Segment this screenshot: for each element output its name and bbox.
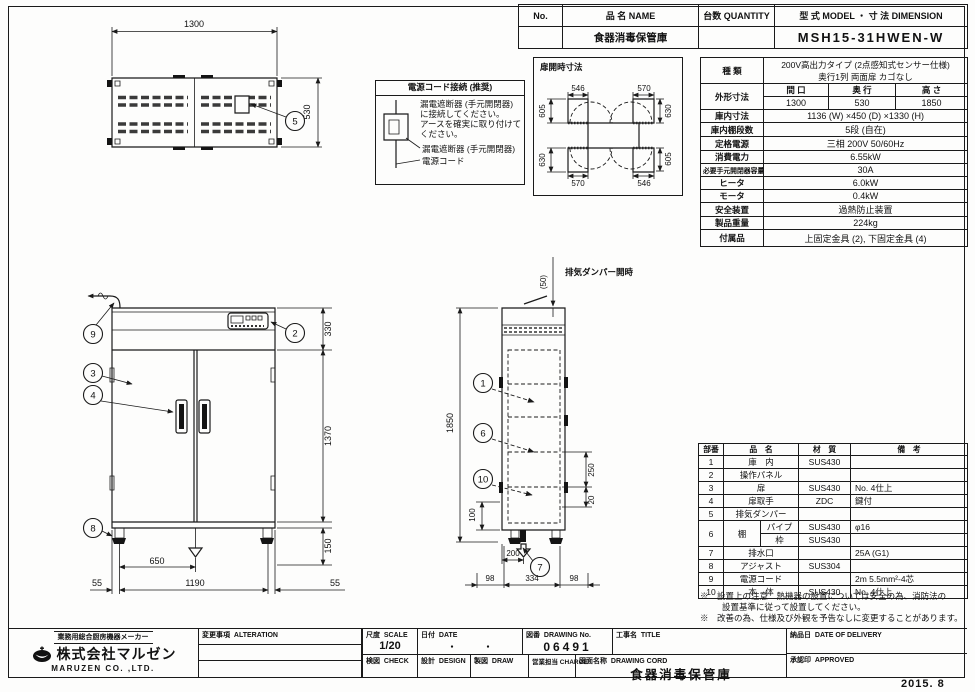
balloon-6: 6 bbox=[474, 424, 493, 443]
plan-width-dim: 1300 bbox=[184, 19, 204, 29]
side-bottom-dim: 100 bbox=[468, 508, 477, 522]
spec-row-label: 製品重量 bbox=[701, 217, 764, 230]
spec-row-value: 30A bbox=[764, 164, 968, 177]
dim-630-right: 630 bbox=[664, 104, 673, 118]
balloon-9: 9 bbox=[84, 325, 103, 344]
front-width-dim: 1190 bbox=[185, 578, 204, 588]
parts-col-no: 部番 bbox=[699, 444, 724, 456]
svg-text:3: 3 bbox=[90, 369, 95, 380]
approved-label: 承認印 APPROVED bbox=[787, 654, 967, 665]
parts-row: 8アジャストSUS304 bbox=[699, 560, 968, 573]
parts-row-shelf-pipe: 6 棚 パイプ SUS430 φ16 bbox=[699, 521, 968, 534]
svg-text:5: 5 bbox=[292, 117, 297, 128]
dim-605-right-bottom: 605 bbox=[664, 152, 673, 166]
side-front-offset-dim: 98 bbox=[486, 574, 495, 583]
control-panel bbox=[228, 313, 268, 329]
outer-col-height: 高 さ bbox=[896, 84, 968, 97]
svg-text:9: 9 bbox=[90, 330, 95, 341]
col-no: No. bbox=[519, 5, 563, 27]
parts-col-material: 材 質 bbox=[799, 444, 851, 456]
draw-cell: 製図 DRAW bbox=[470, 654, 528, 678]
company-name-jp: 株式会社マルゼン bbox=[57, 644, 177, 664]
balloon-10: 10 bbox=[474, 470, 493, 489]
parts-row: 5排気ダンパー bbox=[699, 508, 968, 521]
spec-row-label: 安全装置 bbox=[701, 203, 764, 217]
outer-height: 1850 bbox=[896, 97, 968, 110]
design-label: 設計 DESIGN bbox=[418, 655, 470, 666]
alteration-label: 変更事項 ALTERATION bbox=[199, 629, 361, 640]
spec-row-label: 必要手元開閉器容量 bbox=[701, 164, 764, 177]
balloon-1: 1 bbox=[474, 374, 493, 393]
col-qty: 台数 QUANTITY bbox=[699, 5, 775, 27]
power-note-line2: に接続してください。 bbox=[420, 109, 505, 119]
draw-label: 製図 DRAW bbox=[471, 655, 528, 666]
delivery-label: 納品日 DATE OF DELIVERY bbox=[787, 629, 967, 640]
spec-row-label: モータ bbox=[701, 190, 764, 203]
product-name: 食器消毒保管庫 bbox=[563, 27, 699, 49]
spec-row-value: 三相 200V 50/60Hz bbox=[764, 137, 968, 151]
project-title-label: 工事名 TITLE bbox=[613, 629, 786, 640]
shelf-label: 棚 bbox=[724, 521, 761, 547]
note-line1: ※ 設置上の注意 熱機器の設置については安全の為、消防法の bbox=[700, 591, 970, 602]
side-pitch-dim: 250 bbox=[587, 463, 596, 477]
drawing-name-cell: 図面名称 DRAWING CORD 食器消毒保管庫 bbox=[575, 654, 786, 678]
power-note-title: 電源コード接続 (推奨) bbox=[376, 81, 524, 96]
maker-area: 業務用総合厨房機器メーカー 株式会社マルゼン MARUZEN CO. ,LTD. bbox=[8, 629, 198, 678]
spec-row-label: 定格電源 bbox=[701, 137, 764, 151]
spec-row-value: 6.55kW bbox=[764, 151, 968, 164]
door-open-title: 扉開時寸法 bbox=[540, 61, 583, 73]
dim-570-bottom: 570 bbox=[571, 179, 585, 188]
date-cell: 日付 DATE ・ ・ bbox=[417, 629, 522, 654]
door-open-box: 扉開時寸法 546 570 bbox=[533, 57, 683, 196]
date-value: ・ ・ bbox=[418, 640, 522, 653]
spec-accessory-value: 上固定金具 (2), 下固定金具 (4) bbox=[764, 230, 968, 247]
door-handle-right bbox=[199, 400, 210, 433]
spec-outer-label: 外形寸法 bbox=[701, 84, 764, 110]
balloon-4: 4 bbox=[84, 386, 103, 405]
spec-row-label: 庫内棚段数 bbox=[701, 123, 764, 137]
parts-row: 4扉取手ZDC鍵付 bbox=[699, 495, 968, 508]
scale-cell: 尺度 SCALE 1/20 bbox=[362, 629, 417, 654]
drawing-no-label: 図番 DRAWING No. bbox=[523, 629, 612, 640]
parts-row: 7排水口25A (G1) bbox=[699, 547, 968, 560]
design-cell: 設計 DESIGN bbox=[417, 654, 470, 678]
issue-date-stamp: 2015. 8 bbox=[901, 678, 945, 690]
outer-depth: 530 bbox=[829, 97, 896, 110]
front-left-offset-dim: 55 bbox=[92, 578, 102, 588]
delivery-cell: 納品日 DATE OF DELIVERY bbox=[786, 629, 967, 654]
spec-row-value: 1136 (W) ×450 (D) ×1330 (H) bbox=[764, 110, 968, 123]
spec-accessory-label: 付属品 bbox=[701, 230, 764, 247]
col-name: 品 名 NAME bbox=[563, 5, 699, 27]
front-leg-dim: 150 bbox=[323, 538, 333, 553]
maker-tagline: 業務用総合厨房機器メーカー bbox=[54, 631, 153, 644]
side-height-dim: 1850 bbox=[445, 413, 455, 433]
parts-row: 1庫 内SUS430 bbox=[699, 456, 968, 469]
front-center-dim: 650 bbox=[149, 556, 164, 566]
front-top-dim: 330 bbox=[323, 321, 333, 336]
outer-col-width: 間 口 bbox=[764, 84, 829, 97]
parts-col-name: 品 名 bbox=[724, 444, 799, 456]
check-label: 検図 CHECK bbox=[363, 655, 417, 666]
install-notes: ※ 設置上の注意 熱機器の設置については安全の為、消防法の 設置基準に従って設置… bbox=[700, 591, 970, 624]
balloon-5: 5 bbox=[286, 112, 305, 131]
kind-line1: 200V高出力タイプ (2点感知式センサー仕様) bbox=[766, 59, 965, 71]
drawing-name-value: 食器消毒保管庫 bbox=[576, 664, 786, 683]
header-table: No. 品 名 NAME 台数 QUANTITY 型 式 MODEL ・ 寸 法… bbox=[518, 4, 968, 49]
note-line3: ※ 改善の為、仕様及び外観を予告なしに変更することがあります。 bbox=[700, 613, 970, 624]
spec-row-value: 224kg bbox=[764, 217, 968, 230]
title-block: 業務用総合厨房機器メーカー 株式会社マルゼン MARUZEN CO. ,LTD.… bbox=[8, 628, 967, 678]
svg-text:2: 2 bbox=[292, 329, 297, 340]
qty-value bbox=[699, 27, 775, 49]
note-line2: 設置基準に従って設置してください。 bbox=[700, 602, 970, 613]
parts-row: 3扉SUS430No. 4仕上 bbox=[699, 482, 968, 495]
balloon-3: 3 bbox=[84, 364, 103, 383]
charge-cell: 営業担当 CHARGE bbox=[528, 654, 575, 678]
company-name-en: MARUZEN CO. ,LTD. bbox=[8, 664, 198, 673]
power-note-diagram: 漏電遮断器 (手元開閉器) に接続してください。 アースを確実に取り付けて くだ… bbox=[376, 96, 524, 185]
side-damper-dim: (50) bbox=[539, 275, 548, 290]
parts-table: 部番 品 名 材 質 備 考 1庫 内SUS430 2操作パネル 3扉SUS43… bbox=[698, 443, 968, 599]
header-row: No. 品 名 NAME 台数 QUANTITY 型 式 MODEL ・ 寸 法… bbox=[519, 5, 968, 27]
front-view-drawing: 9 2 bbox=[40, 280, 355, 615]
scale-label: 尺度 SCALE bbox=[363, 629, 417, 640]
spec-row-value: 6.0kW bbox=[764, 177, 968, 190]
side-back-offset-dim: 98 bbox=[570, 574, 579, 583]
charge-label: 営業担当 CHARGE bbox=[529, 655, 575, 666]
side-depth-dim: 334 bbox=[525, 574, 539, 583]
power-note-line1: 漏電遮断器 (手元開閉器) bbox=[420, 99, 513, 109]
dim-605-left: 605 bbox=[538, 104, 547, 118]
date-label: 日付 DATE bbox=[418, 629, 522, 640]
svg-text:8: 8 bbox=[90, 524, 95, 535]
damper-open-label: 排気ダンパー開時 bbox=[565, 267, 634, 277]
maruzen-logo-icon bbox=[30, 646, 54, 663]
scale-value: 1/20 bbox=[363, 640, 417, 652]
parts-col-note: 備 考 bbox=[851, 444, 968, 456]
check-cell: 検図 CHECK bbox=[362, 654, 417, 678]
spec-row-value: 5段 (自在) bbox=[764, 123, 968, 137]
dim-630-left-bottom: 630 bbox=[538, 153, 547, 167]
parts-row: 9電源コード2m 5.5mm²-4芯 bbox=[699, 573, 968, 586]
project-title-cell: 工事名 TITLE bbox=[612, 629, 786, 654]
spec-kind-label: 種 類 bbox=[701, 58, 764, 84]
dim-546-bottom: 546 bbox=[637, 179, 651, 188]
svg-text:10: 10 bbox=[478, 475, 489, 486]
model-number: MSH15-31HWEN-W bbox=[775, 27, 968, 49]
svg-text:1: 1 bbox=[480, 379, 485, 390]
breaker-label: 漏電遮断器 (手元開閉器) bbox=[422, 144, 515, 154]
col-model: 型 式 MODEL ・ 寸 法 DIMENSION bbox=[775, 5, 968, 27]
alteration-area: 変更事項 ALTERATION bbox=[198, 629, 362, 678]
spec-row-label: 消費電力 bbox=[701, 151, 764, 164]
drawing-sheet: No. 品 名 NAME 台数 QUANTITY 型 式 MODEL ・ 寸 法… bbox=[0, 0, 975, 692]
door-handle-left bbox=[176, 400, 187, 433]
svg-text:4: 4 bbox=[90, 391, 95, 402]
dim-546-top: 546 bbox=[571, 84, 585, 93]
door-open-diagram: 546 570 605 630 630 605 570 546 bbox=[534, 58, 682, 193]
spec-row-label: ヒータ bbox=[701, 177, 764, 190]
approved-cell: 承認印 APPROVED bbox=[786, 654, 967, 678]
drawing-no-value: 06491 bbox=[523, 640, 612, 654]
side-view-drawing: 排気ダンパー開時 (50) 1 6 bbox=[420, 255, 696, 618]
power-note-line3: アースを確実に取り付けて bbox=[420, 119, 521, 129]
value-row: 食器消毒保管庫 MSH15-31HWEN-W bbox=[519, 27, 968, 49]
spec-row-value: 過熱防止装置 bbox=[764, 203, 968, 217]
power-cord-label: 電源コード bbox=[422, 156, 465, 166]
drawing-no-cell: 図番 DRAWING No. 06491 bbox=[522, 629, 612, 654]
spec-row-label: 庫内寸法 bbox=[701, 110, 764, 123]
side-gap-dim: 20 bbox=[587, 495, 596, 504]
svg-text:7: 7 bbox=[537, 563, 542, 574]
no-value bbox=[519, 27, 563, 49]
kind-line2: 奥行1列 両面扉 カゴなし bbox=[766, 71, 965, 83]
side-drain-dim: 200 bbox=[506, 549, 520, 558]
plan-view-drawing: 1300 530 5 bbox=[60, 14, 345, 219]
outer-width: 1300 bbox=[764, 97, 829, 110]
svg-text:6: 6 bbox=[480, 429, 485, 440]
balloon-8: 8 bbox=[84, 519, 103, 538]
outer-col-depth: 奥 行 bbox=[829, 84, 896, 97]
balloon-2: 2 bbox=[286, 324, 305, 343]
dim-570-top: 570 bbox=[637, 84, 651, 93]
power-note-box: 電源コード接続 (推奨) 漏電遮断器 (手元開閉器) に接続してください。 アー… bbox=[375, 80, 525, 185]
spec-kind-value: 200V高出力タイプ (2点感知式センサー仕様) 奥行1列 両面扉 カゴなし bbox=[764, 58, 968, 84]
exhaust-damper bbox=[235, 96, 249, 113]
front-door-dim: 1370 bbox=[323, 426, 333, 446]
front-right-offset-dim: 55 bbox=[330, 578, 340, 588]
parts-row: 2操作パネル bbox=[699, 469, 968, 482]
power-note-line4: ください。 bbox=[420, 129, 463, 139]
spec-row-value: 0.4kW bbox=[764, 190, 968, 203]
spec-table: 種 類 200V高出力タイプ (2点感知式センサー仕様) 奥行1列 両面扉 カゴ… bbox=[700, 57, 968, 247]
